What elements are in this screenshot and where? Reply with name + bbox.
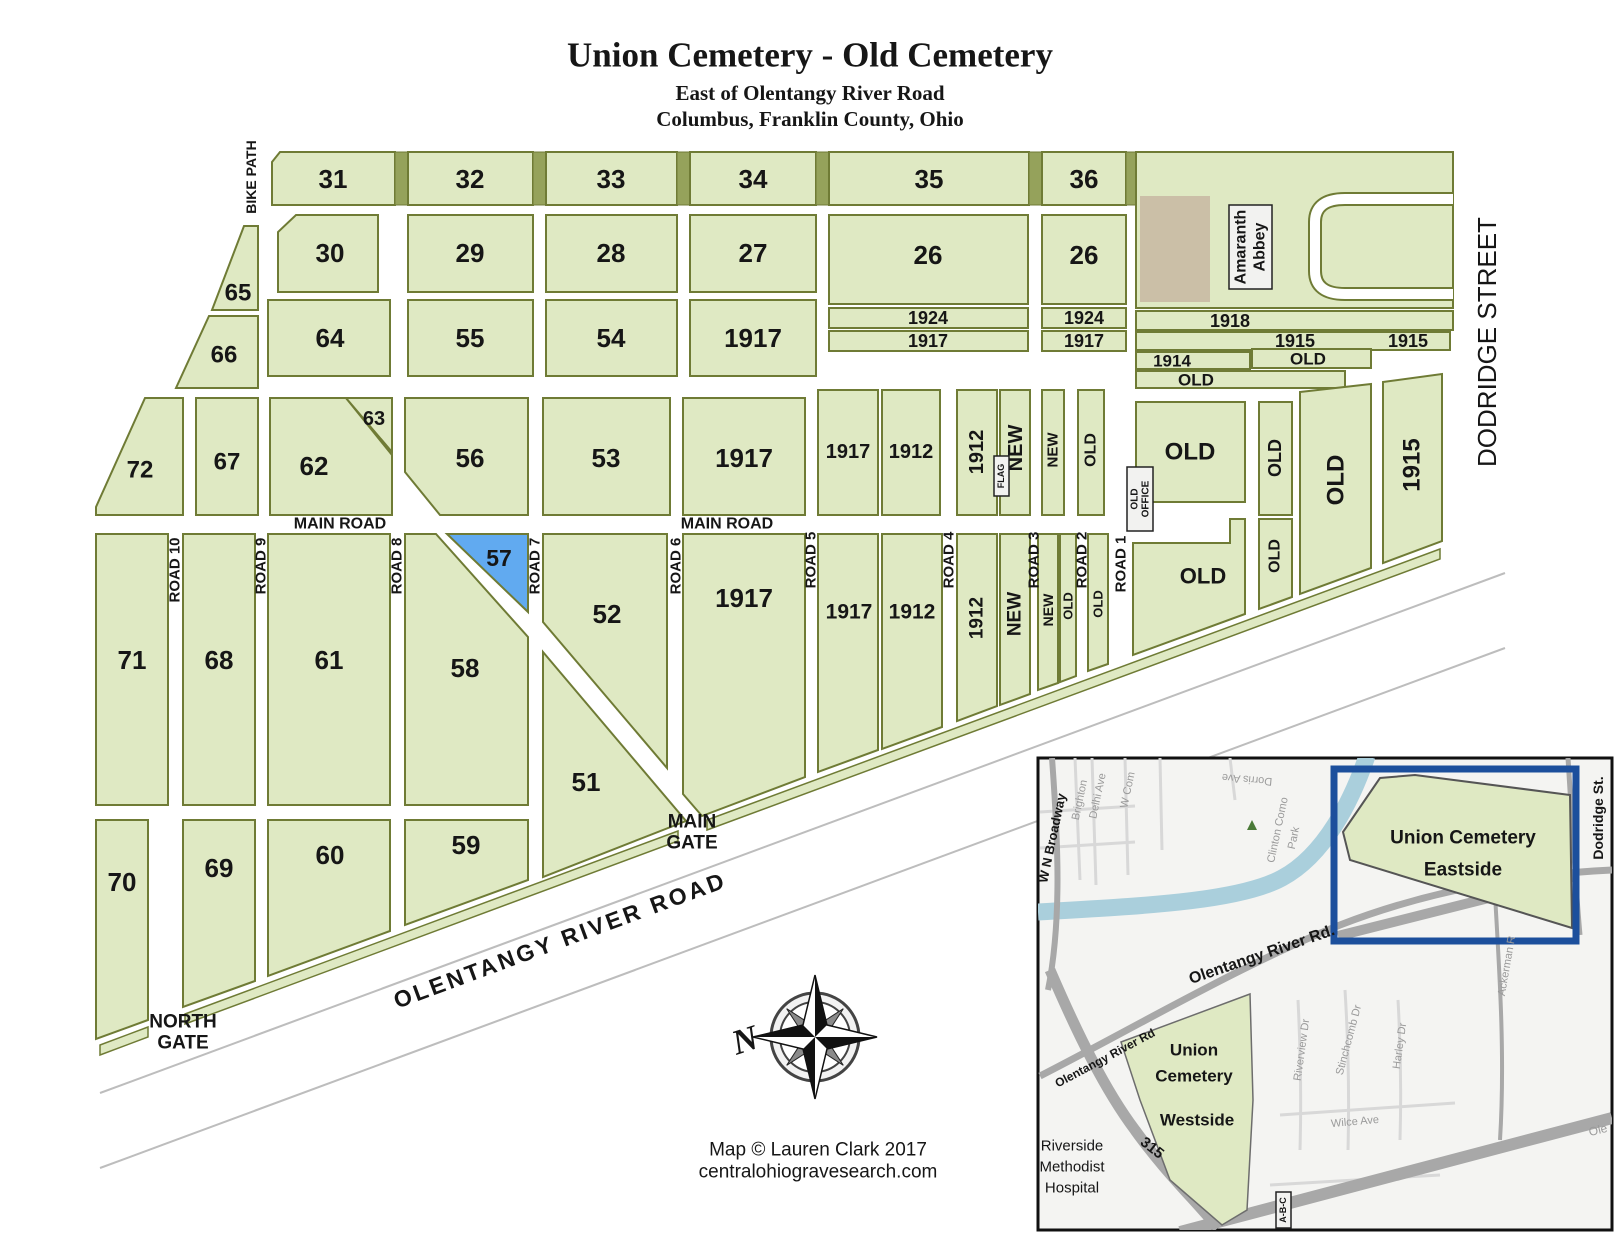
section-65-label: 65 bbox=[225, 280, 252, 307]
section-big-old-label: OLD bbox=[1165, 439, 1216, 466]
page-subtitle-1: East of Olentangy River Road bbox=[675, 81, 944, 105]
section-1917-mid-upper-label: 1917 bbox=[826, 441, 871, 463]
old-office-label-2: OFFICE bbox=[1141, 480, 1152, 517]
strip-1915-label-b: 1915 bbox=[1388, 331, 1428, 351]
section-56-label: 56 bbox=[456, 443, 485, 473]
main-road-label-west: MAIN ROAD bbox=[294, 516, 386, 533]
separator-bar bbox=[533, 152, 546, 205]
section-30-label: 30 bbox=[316, 238, 345, 268]
section-64-label: 64 bbox=[316, 323, 345, 353]
section-1912-strip-lower-label: 1912 bbox=[967, 597, 988, 639]
inset-eastside-label-2: Eastside bbox=[1424, 860, 1502, 881]
section-27-label: 27 bbox=[739, 238, 768, 268]
section-57-label: 57 bbox=[486, 545, 512, 571]
map-credit-line-2: centralohiogravesearch.com bbox=[699, 1162, 938, 1183]
road-3-label: ROAD 3 bbox=[1026, 532, 1043, 589]
section-old-strip-east-lower-label: OLD bbox=[1267, 539, 1284, 573]
section-51-label: 51 bbox=[572, 767, 601, 797]
flag-label: FLAG bbox=[996, 464, 1006, 489]
inset-map: Union Cemetery Eastside Union Cemetery W… bbox=[1035, 756, 1612, 1232]
separator-bar bbox=[677, 152, 690, 205]
section-35-label: 35 bbox=[915, 164, 944, 194]
section-72-label: 72 bbox=[127, 457, 154, 484]
section-70-label: 70 bbox=[108, 867, 137, 897]
section-1917-row4-label: 1917 bbox=[715, 443, 773, 473]
separator-bar bbox=[395, 152, 408, 205]
section-63-label: 63 bbox=[363, 408, 385, 430]
compass-north-label: N bbox=[726, 1017, 765, 1063]
section-59-label: 59 bbox=[452, 830, 481, 860]
map-credit-line-1: Map © Lauren Clark 2017 bbox=[709, 1140, 927, 1161]
cemetery-map: Union Cemetery - Old Cemetery East of Ol… bbox=[0, 0, 1621, 1234]
page-subtitle-2: Columbus, Franklin County, Ohio bbox=[656, 107, 964, 131]
section-28-label: 28 bbox=[597, 238, 626, 268]
inset-westside-label-1: Union bbox=[1170, 1041, 1218, 1060]
amaranth-abbey-label-1: Amaranth bbox=[1233, 210, 1250, 285]
road-8-label: ROAD 8 bbox=[389, 538, 406, 595]
section-new-strip-lower-b-label: NEW bbox=[1040, 593, 1056, 626]
abbey-building bbox=[1140, 196, 1210, 302]
section-29-label: 29 bbox=[456, 238, 485, 268]
section-1912-mid-lower bbox=[882, 534, 942, 749]
strip-old-lower bbox=[1136, 371, 1345, 388]
inset-hospital-label-2: Methodist bbox=[1039, 1159, 1105, 1176]
road-10-label: ROAD 10 bbox=[167, 537, 184, 602]
strip-1924-right-label: 1924 bbox=[1064, 308, 1104, 328]
section-61-label: 61 bbox=[315, 645, 344, 675]
cemetery-map-page: Union Cemetery - Old Cemetery East of Ol… bbox=[0, 0, 1621, 1234]
section-60-label: 60 bbox=[316, 840, 345, 870]
section-1917-below-main-label: 1917 bbox=[715, 583, 773, 613]
strip-1917-right-label: 1917 bbox=[1064, 331, 1104, 351]
section-lower-old-label: OLD bbox=[1180, 564, 1226, 589]
section-31-label: 31 bbox=[319, 164, 348, 194]
strip-1915-label-a: 1915 bbox=[1275, 331, 1315, 351]
inset-hospital-label-3: Hospital bbox=[1045, 1180, 1099, 1197]
section-70 bbox=[96, 820, 148, 1039]
inset-abc-label: A-B-C bbox=[1278, 1197, 1288, 1223]
section-66-label: 66 bbox=[211, 342, 238, 369]
section-1917-row3-label: 1917 bbox=[724, 323, 782, 353]
section-old-strip-lower-b-label: OLD bbox=[1091, 590, 1106, 617]
strip-1917-left-label: 1917 bbox=[908, 331, 948, 351]
main-gate-label-2: GATE bbox=[666, 833, 717, 854]
inset-dodridge-st-label: Dodridge St. bbox=[1590, 776, 1606, 859]
north-gate-label-2: GATE bbox=[157, 1033, 208, 1054]
amaranth-abbey-label-2: Abbey bbox=[1252, 222, 1269, 271]
page-title: Union Cemetery - Old Cemetery bbox=[567, 36, 1053, 75]
old-office-label-1: OLD bbox=[1130, 488, 1141, 509]
north-gate-label-1: NORTH bbox=[149, 1012, 217, 1033]
main-gate-label-1: MAIN bbox=[668, 812, 717, 833]
bike-path-label: BIKE PATH bbox=[243, 140, 259, 213]
strip-1914-label: 1914 bbox=[1153, 352, 1191, 371]
section-55-label: 55 bbox=[456, 323, 485, 353]
section-53-label: 53 bbox=[592, 443, 621, 473]
strip-1924-left-label: 1924 bbox=[908, 308, 948, 328]
section-58-label: 58 bbox=[451, 653, 480, 683]
inset-westside-label-3: Westside bbox=[1160, 1111, 1234, 1130]
road-2-label: ROAD 2 bbox=[1074, 532, 1091, 589]
section-old-strip-upper-label: OLD bbox=[1083, 433, 1100, 467]
strip-1918-label: 1918 bbox=[1210, 311, 1250, 331]
section-26-right-label: 26 bbox=[1070, 240, 1099, 270]
section-1912-mid-upper-label: 1912 bbox=[889, 441, 934, 463]
section-62-label: 62 bbox=[300, 451, 329, 481]
road-9-label: ROAD 9 bbox=[253, 538, 270, 595]
inset-eastside-label-1: Union Cemetery bbox=[1390, 828, 1536, 849]
road-7-label: ROAD 7 bbox=[527, 538, 544, 595]
section-new-strip-lower-a-label: NEW bbox=[1005, 592, 1026, 636]
section-1917-mid-lower bbox=[818, 534, 878, 772]
section-34-label: 34 bbox=[739, 164, 768, 194]
section-54-label: 54 bbox=[597, 323, 626, 353]
road-6-label: ROAD 6 bbox=[668, 538, 685, 595]
section-32-label: 32 bbox=[456, 164, 485, 194]
separator-bar bbox=[1029, 152, 1042, 205]
road-4-label: ROAD 4 bbox=[941, 531, 958, 588]
strip-1918 bbox=[1136, 311, 1453, 330]
compass-rose: N bbox=[726, 975, 877, 1099]
section-1917-below-main bbox=[683, 534, 805, 816]
separator-bar bbox=[816, 152, 829, 205]
section-old-parallelogram-label: OLD bbox=[1323, 455, 1350, 506]
section-1915-east-label: 1915 bbox=[1399, 438, 1426, 491]
section-71-label: 71 bbox=[118, 645, 147, 675]
strip-old-lower-label: OLD bbox=[1178, 371, 1214, 390]
section-52-label: 52 bbox=[593, 599, 622, 629]
road-5-label: ROAD 5 bbox=[803, 532, 820, 589]
section-69 bbox=[183, 820, 255, 1007]
section-old-strip-lower-a-label: OLD bbox=[1061, 592, 1076, 619]
section-69-label: 69 bbox=[205, 853, 234, 883]
section-1912-mid-lower-label: 1912 bbox=[889, 601, 936, 624]
section-36-label: 36 bbox=[1070, 164, 1099, 194]
separator-bar bbox=[1126, 152, 1136, 205]
section-26-left-label: 26 bbox=[914, 240, 943, 270]
section-old-strip-east-upper-label: OLD bbox=[1265, 439, 1285, 477]
inset-westside-label-2: Cemetery bbox=[1155, 1067, 1233, 1086]
strip-old-upper-label: OLD bbox=[1290, 350, 1326, 369]
section-1917-mid-lower-label: 1917 bbox=[826, 601, 873, 624]
road-1-label: ROAD 1 bbox=[1113, 536, 1130, 593]
section-67-label: 67 bbox=[214, 449, 241, 476]
main-road-label-east: MAIN ROAD bbox=[681, 516, 773, 533]
section-1912-strip-upper-label: 1912 bbox=[966, 430, 988, 475]
section-68-label: 68 bbox=[205, 645, 234, 675]
inset-hospital-label-1: Riverside bbox=[1041, 1138, 1104, 1155]
section-33-label: 33 bbox=[597, 164, 626, 194]
dodridge-street-label: DODRIDGE STREET bbox=[1472, 217, 1502, 467]
section-new-strip-upper-b-label: NEW bbox=[1045, 432, 1062, 468]
